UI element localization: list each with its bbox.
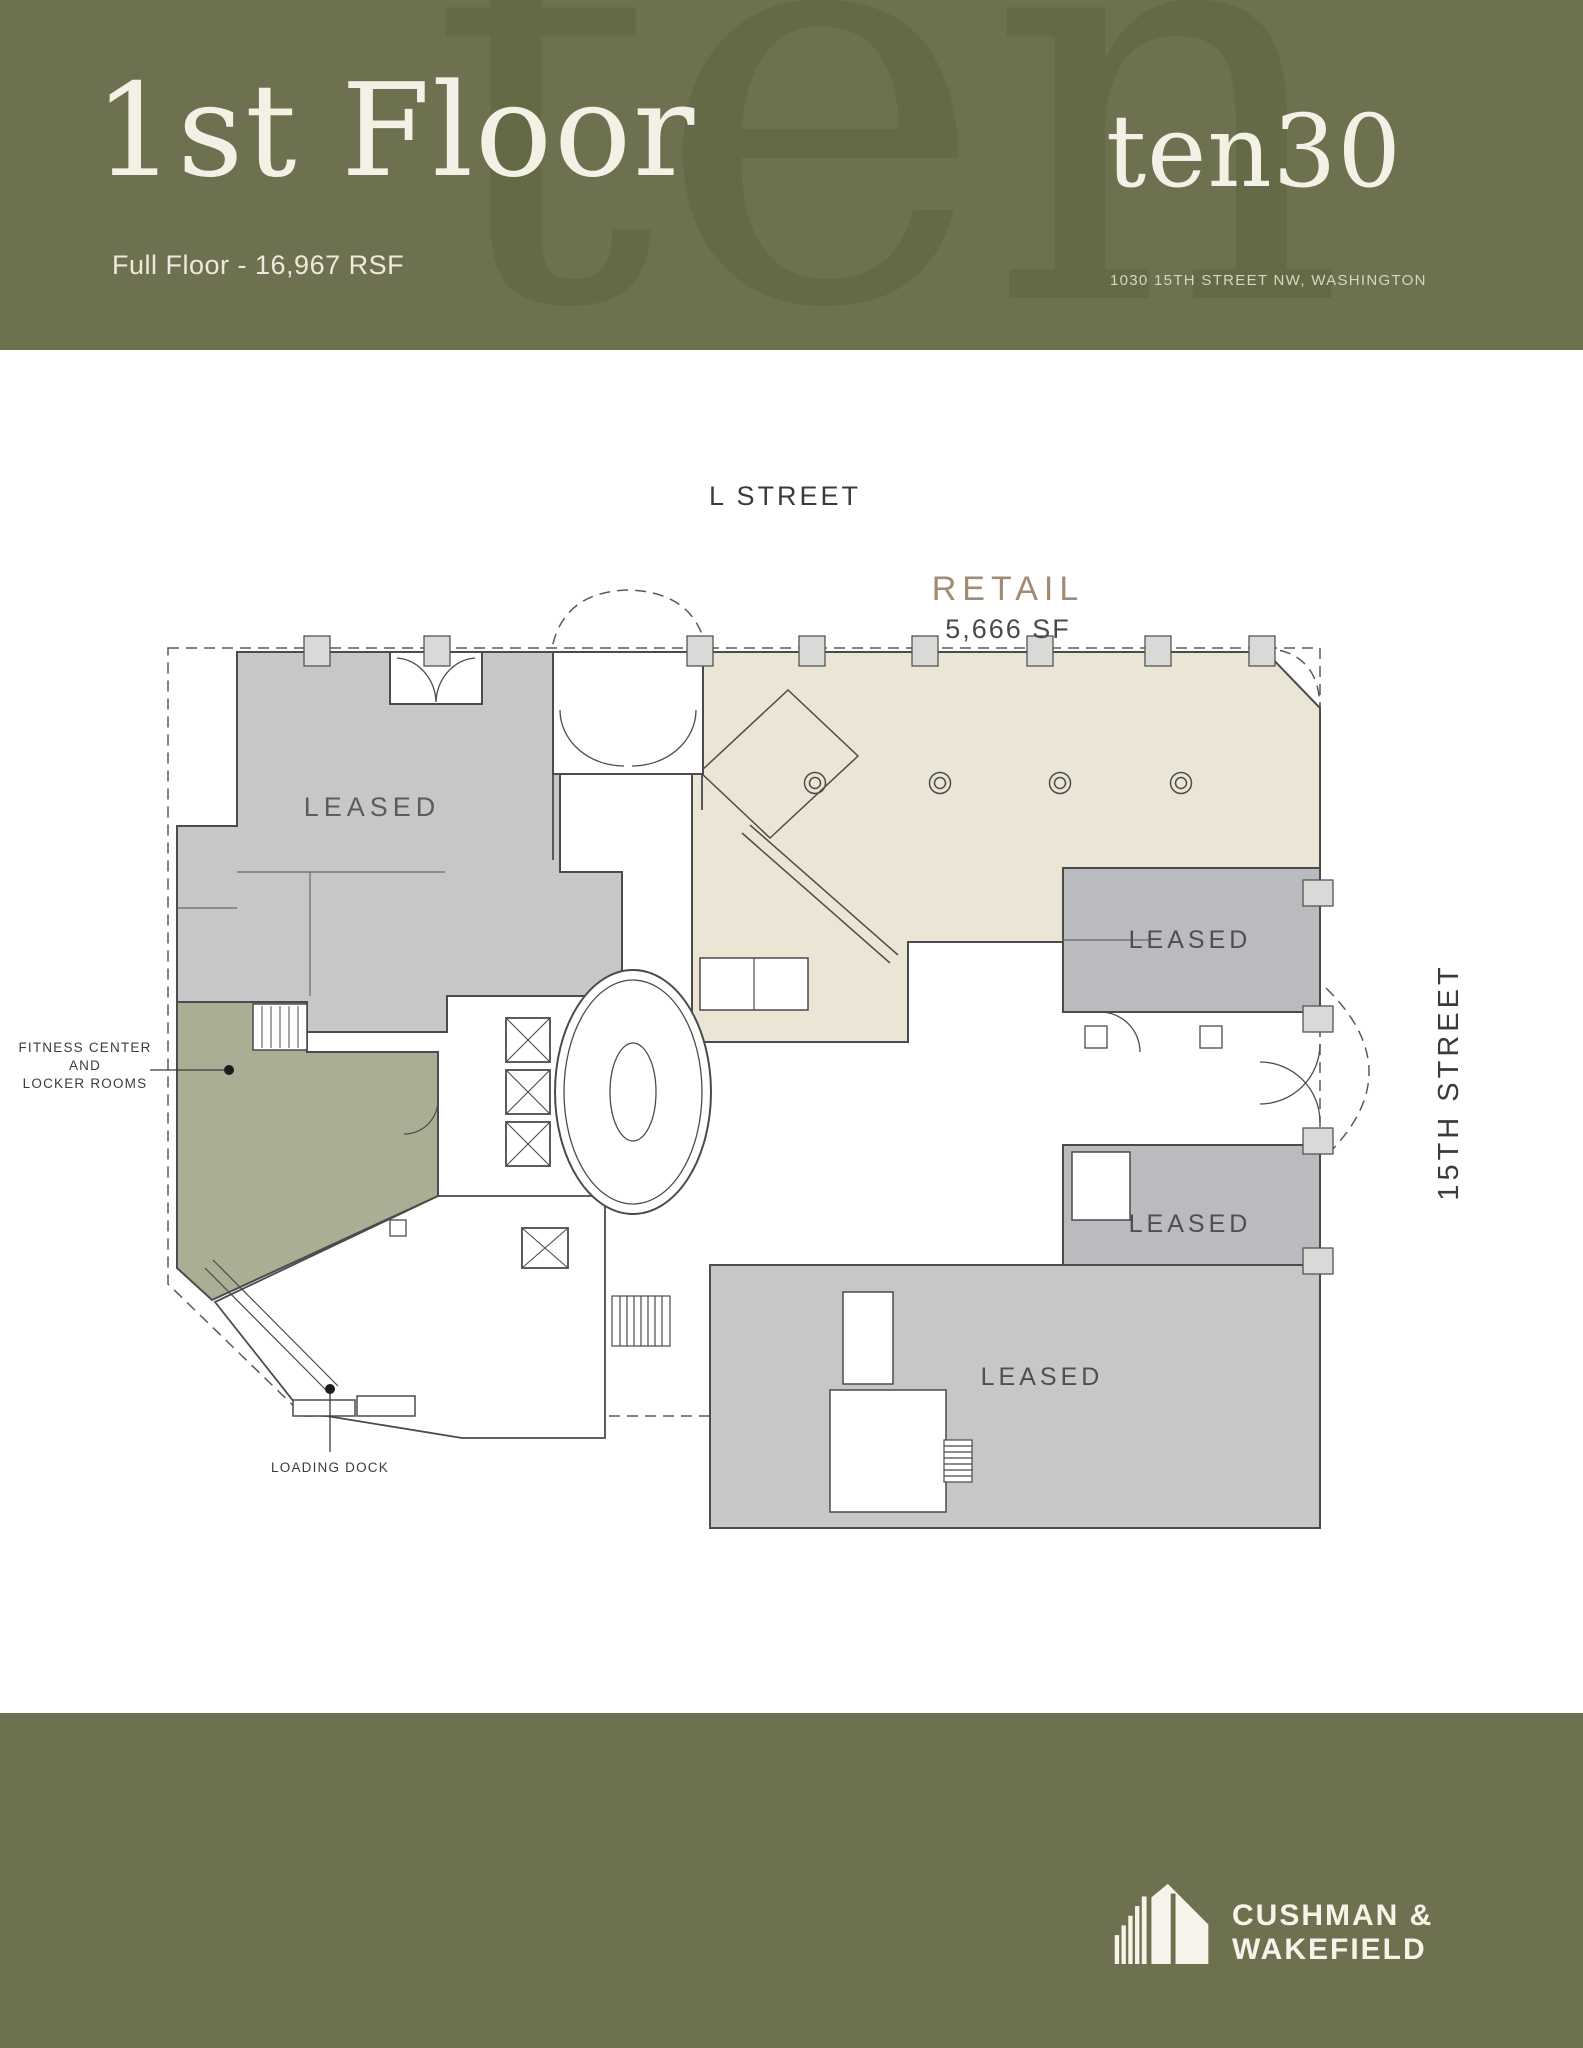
- floor-size-subtitle: Full Floor - 16,967 RSF: [112, 250, 404, 281]
- fitness-label-line3: LOCKER ROOMS: [23, 1076, 148, 1091]
- ten30-logo: ten30: [1106, 92, 1402, 212]
- leased-area-bottom: LEASED: [710, 1265, 1320, 1528]
- leased-label: LEASED: [1129, 926, 1252, 954]
- logo-bar-gap: [1171, 1894, 1176, 1964]
- header-band: ten 1st Floor Full Floor - 16,967 RSF te…: [0, 0, 1583, 350]
- entrance-vestibule: [553, 652, 703, 774]
- footer-band: LAURIE MCMAHON +1 202 369 1219 laurie.mc…: [0, 1713, 1583, 2048]
- leased-label: LEASED: [981, 1363, 1104, 1391]
- l-street-label: L STREET: [709, 481, 861, 511]
- leased-area-right-upper: LEASED: [1063, 868, 1320, 1012]
- brand-line1: CUSHMAN &: [1232, 1899, 1433, 1933]
- cushman-wakefield-logo-text: CUSHMAN & WAKEFIELD: [1232, 1899, 1433, 1967]
- leased-area-right-lower: LEASED: [1063, 1145, 1320, 1280]
- loading-dock-leader-dot: [325, 1384, 335, 1394]
- stair: [612, 1296, 670, 1346]
- page-title: 1st Floor: [94, 62, 696, 203]
- retail-label: RETAIL: [932, 570, 1085, 608]
- fitness-leader-dot: [224, 1065, 234, 1075]
- fifteenth-street-label: 15TH STREET: [1433, 963, 1465, 1200]
- loading-dock-label: LOADING DOCK: [271, 1460, 389, 1475]
- cushman-wakefield-logo-icon: [1113, 1882, 1213, 1964]
- leased-label: LEASED: [304, 792, 441, 822]
- rotunda-oval: [610, 1043, 656, 1141]
- leased-label: LEASED: [1129, 1210, 1252, 1238]
- floor-plan: LEASED LEASED LEASED: [0, 350, 1583, 1713]
- fitness-label-line2: AND: [69, 1058, 101, 1073]
- building-address: 1030 15TH STREET NW, WASHINGTON: [1110, 272, 1427, 289]
- flyer-page: ten 1st Floor Full Floor - 16,967 RSF te…: [0, 0, 1583, 2048]
- retail-area-label: 5,666 SF: [945, 614, 1071, 644]
- right-lobby: [1085, 1012, 1320, 1122]
- brand-line2: WAKEFIELD: [1232, 1933, 1433, 1967]
- fitness-label-line1: FITNESS CENTER: [18, 1040, 151, 1055]
